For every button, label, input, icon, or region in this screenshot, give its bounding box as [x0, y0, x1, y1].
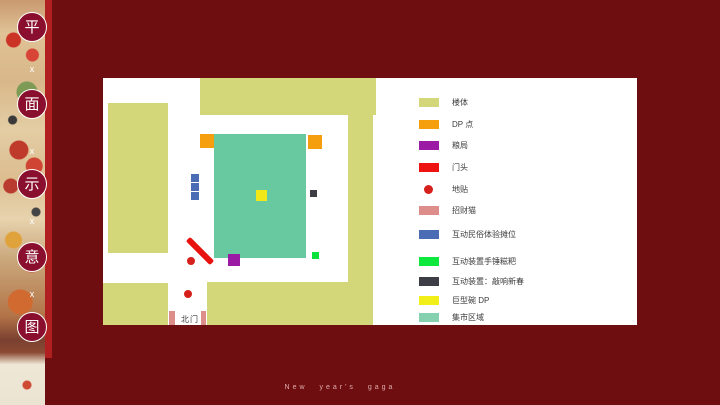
legend-swatch	[419, 163, 439, 172]
legend-label: 门头	[452, 163, 468, 172]
floor-sticker-dot	[187, 257, 195, 265]
legend-label: 楼体	[452, 98, 468, 107]
title-char-badge: 示	[17, 169, 47, 199]
legend-label: 地贴	[452, 185, 468, 194]
legend-label: 互动民俗体验摊位	[452, 230, 516, 239]
title-char-badge: 平	[17, 12, 47, 42]
legend-swatch	[419, 313, 439, 322]
title-separator: x	[22, 65, 42, 74]
legend-item-building: 楼体	[419, 98, 468, 107]
legend-item-giant-bowl: 巨型碗 DP	[419, 296, 489, 305]
legend-item-folk-stall: 互动民俗体验摊位	[419, 230, 516, 239]
folk-stall	[191, 174, 199, 182]
title-char-badge: 意	[17, 242, 47, 272]
device-ring-new-spring	[310, 190, 317, 197]
legend-label: 集市区域	[452, 313, 484, 322]
folk-stall	[191, 192, 199, 200]
legend-item-lucky-cat: 招财猫	[419, 206, 476, 215]
title-separator: x	[22, 147, 42, 156]
slide-caption: New year's gaga	[103, 384, 577, 391]
legend-swatch	[419, 230, 439, 239]
giant-bowl-dp	[256, 190, 267, 201]
title-char-badge: 面	[17, 89, 47, 119]
folk-stall	[191, 183, 199, 191]
folk-art-strip	[0, 0, 45, 405]
legend-label: 互动装置：敲响新春	[452, 277, 524, 286]
grain-bureau	[228, 254, 240, 266]
north-gate-label: 北门	[177, 314, 203, 325]
legend-label: DP 点	[452, 120, 473, 129]
legend-swatch	[419, 257, 439, 266]
legend-item-ring-device: 互动装置：敲响新春	[419, 277, 524, 286]
legend-item-ciba-device: 互动装置手锤糍粑	[419, 257, 516, 266]
dp-point-left	[200, 134, 214, 148]
legend-swatch	[419, 120, 439, 129]
building-block-right	[348, 115, 373, 283]
legend-dot-swatch	[424, 185, 433, 194]
legend-label: 巨型碗 DP	[452, 296, 489, 305]
dp-point-right	[308, 135, 322, 149]
legend-swatch	[419, 206, 439, 215]
legend-label: 互动装置手锤糍粑	[452, 257, 516, 266]
legend-item-gate-head: 门头	[419, 163, 468, 172]
legend-item-grain-bureau: 粮局	[419, 141, 468, 150]
legend-swatch	[419, 141, 439, 150]
title-separator: x	[22, 290, 42, 299]
building-block-bottom-left	[103, 283, 168, 325]
legend-item-floor-sticker: 地贴	[419, 185, 468, 194]
title-char-badge: 图	[17, 312, 47, 342]
legend-item-dp-point: DP 点	[419, 120, 473, 129]
legend-swatch	[419, 296, 439, 305]
legend-item-market-area: 集市区域	[419, 313, 484, 322]
floor-plan-card: 北门 楼体 DP 点 粮局 门头 地贴 招财猫 互动民俗体验摊位	[103, 78, 637, 325]
legend-label: 招财猫	[452, 206, 476, 215]
legend-swatch	[419, 98, 439, 107]
slide: 平 x 面 x 示 x 意 x 图 北	[0, 0, 720, 405]
title-separator: x	[22, 217, 42, 226]
device-ciba-hammer	[312, 252, 319, 259]
building-block-left	[108, 103, 168, 253]
floor-sticker-dot	[184, 290, 192, 298]
legend-label: 粮局	[452, 141, 468, 150]
legend-swatch	[419, 277, 439, 286]
building-block-top	[200, 78, 376, 115]
building-block-bottom-right	[207, 282, 373, 325]
lucky-cat-marker	[169, 311, 175, 325]
